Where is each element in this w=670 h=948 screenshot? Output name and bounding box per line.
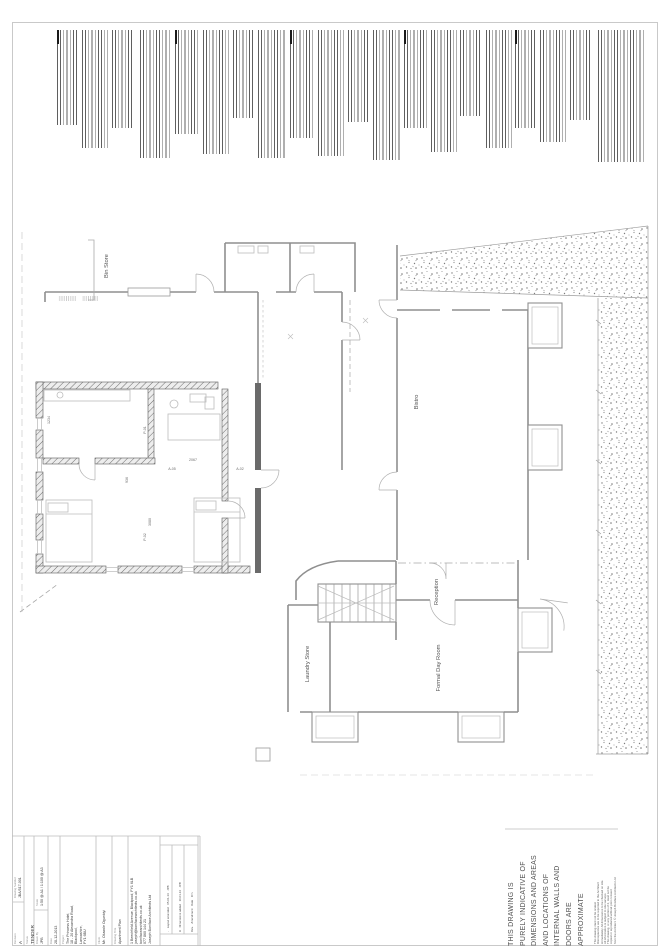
notes-column <box>570 30 592 120</box>
notes-column <box>540 30 566 142</box>
status-cell: StatusTENDER <box>26 848 34 944</box>
furniture <box>44 246 368 761</box>
notes-column <box>373 30 401 160</box>
project-cell: ProjectThe Princess Hotel,18 - 20 Alexan… <box>62 844 95 944</box>
notes-column <box>404 30 428 128</box>
indicative-note-line: DOORS ARE <box>564 832 576 946</box>
new-solid-wall <box>255 383 261 573</box>
revision-row-a-line: A Dimensions added 10-01-14 JPB <box>175 846 186 932</box>
drawing-title-cell: Drawing TitleApartment Plan <box>114 844 127 944</box>
drawing-number-cell: Drawing NumberJBA/517-001 <box>14 846 24 898</box>
room-label: Laundry Store <box>305 646 311 682</box>
indicative-note-line: AND LOCATIONS OF <box>541 832 553 946</box>
notes-column <box>348 30 370 122</box>
project-cell-line: FY1 6BU <box>83 844 87 944</box>
status-cell-line: TENDER <box>30 848 35 944</box>
room-label: Bin Store <box>104 254 110 278</box>
notes-column <box>258 30 286 158</box>
dim-label: 936 <box>125 477 129 483</box>
copyright-note-line: from the Architect. © Joseph Boniface Ar… <box>614 832 617 944</box>
revision-cell-line: A <box>18 908 23 944</box>
copyright-note: This drawing must not be scaled.Discrepa… <box>594 832 618 944</box>
room-label: Formal Day Room <box>436 644 442 691</box>
indicative-note-line: INTERNAL WALLS AND <box>552 832 564 946</box>
notes-column <box>460 30 482 116</box>
indicative-note-line: THIS DRAWING IS <box>506 832 518 946</box>
architect-cell: 1 Beechfield Avenue, Blackpool, FY1 6LBj… <box>130 840 159 944</box>
drawn-by-cell: Drawn ByJPB <box>36 914 48 944</box>
existing-walls <box>45 243 528 712</box>
notes-column <box>233 30 255 118</box>
new-hatched-walls <box>36 382 250 573</box>
notes-column <box>112 30 134 128</box>
room-label: Reception <box>434 579 440 605</box>
dim-label: 2067 <box>189 458 197 462</box>
drawing-number-cell-line: JBA/517-001 <box>18 846 22 898</box>
architect-cell-line: Joseph Boniface Architects Ltd <box>148 840 152 944</box>
client-cell: ClientMr. Oluwole Ogunbiyi <box>98 844 111 944</box>
indicative-note-line: APPROXIMATE <box>576 832 588 946</box>
revision-row-a: A Dimensions added 10-01-14 JPB <box>175 846 186 932</box>
scale-cell-line: 1:50 @ A1 / 1:100 @ A3 <box>40 844 44 906</box>
staircase <box>318 584 396 622</box>
bin-store-bracket <box>88 240 94 300</box>
drawn-by-cell-line: JPB <box>40 914 44 944</box>
notes-column <box>82 30 108 148</box>
notes-column <box>290 30 314 138</box>
revision-table-header-line: Rev. Amendment Date Drn <box>187 846 198 932</box>
dim-label: 3080 <box>148 518 152 526</box>
scale-cell: Scale1:50 @ A1 / 1:100 @ A3 <box>36 844 48 906</box>
revision-row-b-line: - Layout amended 05-01-14 JPB <box>163 846 174 932</box>
dim-label: A-02 <box>236 467 244 471</box>
dim-label: P-02 <box>143 533 147 541</box>
notes-column <box>486 30 512 148</box>
date-cell: Date28-12-2013 <box>50 848 60 944</box>
indicative-note-line: PURELY INDICATIVE OF <box>518 832 530 946</box>
notes-column <box>318 30 344 156</box>
room-label: Bistro <box>414 395 420 410</box>
notes-column <box>515 30 537 128</box>
revision-row-b: - Layout amended 05-01-14 JPB <box>163 846 174 932</box>
dashed-lines <box>263 300 518 563</box>
dim-label: 1234 <box>47 416 51 424</box>
notes-column <box>598 30 645 162</box>
drawing-title-cell-line: Apartment Plan <box>118 844 122 944</box>
site-boundary-lines <box>20 232 596 775</box>
client-cell-line: Mr. Oluwole Ogunbiyi <box>102 844 106 944</box>
revision-cell: RevisionA <box>14 908 24 944</box>
notes-column <box>431 30 457 152</box>
notes-column <box>203 30 229 154</box>
window-lines <box>38 418 195 572</box>
indicative-note-line: DIMENSIONS AND AREAS <box>529 832 541 946</box>
date-cell-line: 28-12-2013 <box>54 848 58 944</box>
dim-label: P-01 <box>143 426 147 434</box>
dimension-labels: 12343080936P-01P-022067A-05A-02 <box>47 416 244 541</box>
drawing-sheet: BistroReceptionLaundry StoreFormal Day R… <box>0 0 670 948</box>
dim-label: A-05 <box>168 467 176 471</box>
notes-column <box>175 30 199 134</box>
page-border <box>12 23 658 947</box>
notes-column <box>140 30 170 158</box>
revision-table-header: Rev. Amendment Date Drn <box>187 846 198 932</box>
indicative-note: THIS DRAWING ISPURELY INDICATIVE OFDIMEN… <box>506 832 592 946</box>
notes-column <box>57 30 77 125</box>
